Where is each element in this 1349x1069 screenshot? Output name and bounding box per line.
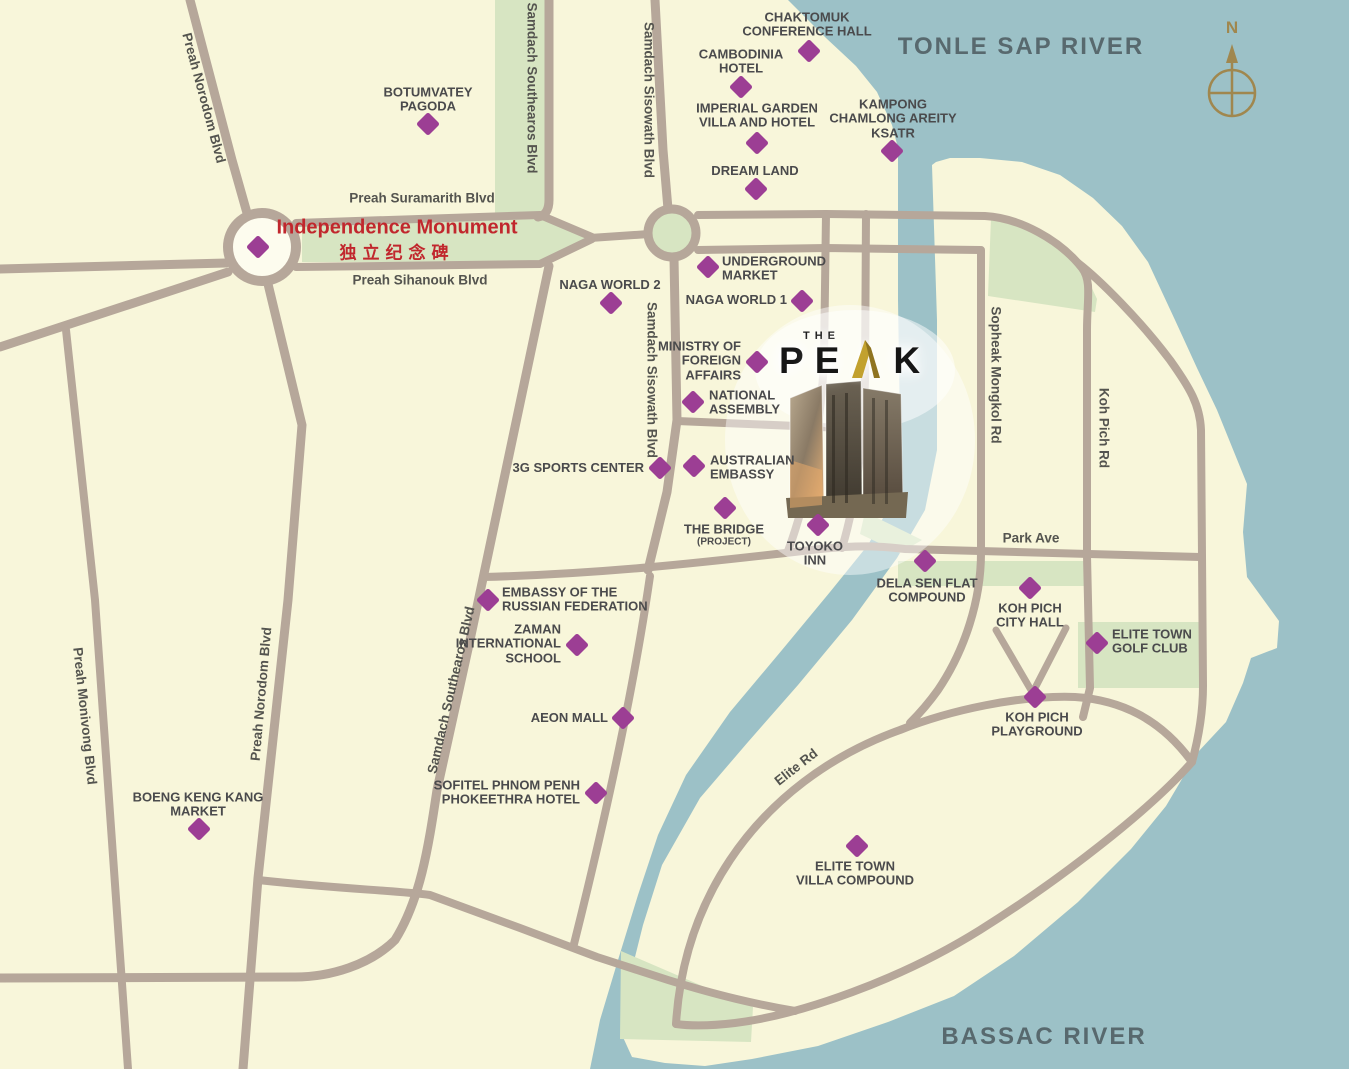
- poi-label-line: KSATR: [829, 126, 956, 140]
- poi-label-line: IMPERIAL GARDEN: [696, 102, 818, 116]
- poi-label-kampong-chamlong-areity-ksatr: KAMPONGCHAMLONG AREITYKSATR: [829, 98, 956, 141]
- poi-label-line: SOFITEL PHNOM PENH: [434, 779, 580, 793]
- poi-label-line: CHAMLONG AREITY: [829, 112, 956, 126]
- road-label: Park Ave: [1003, 531, 1060, 546]
- poi-label-cambodinia-hotel: CAMBODINIAHOTEL: [699, 48, 784, 77]
- poi-label-embassy-of-the-russian-federation: EMBASSY OF THERUSSIAN FEDERATION: [502, 586, 648, 615]
- poi-label-line: INN: [787, 554, 843, 568]
- the-peak-logo: THE P E K: [779, 328, 929, 384]
- poi-label-line: KOH PICH: [991, 711, 1082, 725]
- poi-label-line: AEON MALL: [531, 711, 608, 725]
- poi-label-line: KOH PICH: [996, 602, 1064, 616]
- poi-label-naga-world-2: NAGA WORLD 2: [559, 278, 660, 292]
- poi-label-line: UNDERGROUND: [722, 255, 826, 269]
- poi-label-koh-pich-city-hall: KOH PICHCITY HALL: [996, 602, 1064, 631]
- poi-label-naga-world-1: NAGA WORLD 1: [686, 293, 787, 307]
- poi-label-line: MARKET: [133, 805, 264, 819]
- poi-label-line: NATIONAL: [709, 389, 780, 403]
- logo-letter-p: P: [779, 342, 804, 379]
- monument-name-en: Independence Monument: [276, 217, 517, 239]
- poi-label-elite-town-villa-compound: ELITE TOWNVILLA COMPOUND: [796, 860, 914, 889]
- poi-label-line: CONFERENCE HALL: [742, 25, 871, 39]
- poi-label-line: HOTEL: [699, 62, 784, 76]
- poi-label-line: VILLA AND HOTEL: [696, 116, 818, 130]
- poi-label-line: VILLA COMPOUND: [796, 874, 914, 888]
- poi-label-line: BOTUMVATEY: [383, 86, 472, 100]
- poi-label-line: CAMBODINIA: [699, 48, 784, 62]
- poi-label-boeng-keng-kang-market: BOENG KENG KANGMARKET: [133, 791, 264, 820]
- poi-label-line: KAMPONG: [829, 98, 956, 112]
- poi-label-line: THE BRIDGE: [684, 522, 764, 536]
- poi-label-line: 3G SPORTS CENTER: [513, 461, 644, 475]
- poi-label-line: ELITE TOWN: [796, 860, 914, 874]
- poi-label-line: (PROJECT): [684, 537, 764, 548]
- logo-letter-k: K: [893, 342, 920, 379]
- road-label: Koh Pich Rd: [1097, 388, 1112, 468]
- poi-label-line: SCHOOL: [456, 651, 561, 665]
- poi-label-line: MINISTRY OF: [658, 340, 741, 354]
- poi-label-line: BOENG KENG KANG: [133, 791, 264, 805]
- poi-label-toyoko-inn: TOYOKOINN: [787, 540, 843, 569]
- poi-label-line: ZAMAN: [456, 623, 561, 637]
- poi-label-national-assembly: NATIONALASSEMBLY: [709, 389, 780, 418]
- river-label: BASSAC RIVER: [941, 1023, 1146, 1051]
- poi-label-aeon-mall: AEON MALL: [531, 711, 608, 725]
- poi-label-botumvatey-pagoda: BOTUMVATEYPAGODA: [383, 86, 472, 115]
- poi-label-line: INTERNATIONAL: [456, 637, 561, 651]
- poi-label-line: MARKET: [722, 269, 826, 283]
- map-canvas: N: [0, 0, 1349, 1069]
- poi-label-line: PHOKEETHRA HOTEL: [434, 793, 580, 807]
- poi-label-line: FOREIGN: [658, 354, 741, 368]
- road-label: Samdach Sisowath Blvd: [642, 22, 657, 178]
- poi-label-line: CITY HALL: [996, 616, 1064, 630]
- poi-label-ministry-of-foreign-affairs: MINISTRY OFFOREIGNAFFAIRS: [658, 340, 741, 383]
- compass-north-label: N: [1226, 18, 1238, 37]
- poi-label-dream-land: DREAM LAND: [711, 164, 798, 178]
- poi-label-line: PLAYGROUND: [991, 725, 1082, 739]
- road-label: Preah Suramarith Blvd: [349, 191, 495, 206]
- road-label: Sopheak Mongkol Rd: [989, 306, 1004, 443]
- poi-label-zaman-international-school: ZAMANINTERNATIONALSCHOOL: [456, 623, 561, 666]
- poi-label-chaktomuk-conference-hall: CHAKTOMUKCONFERENCE HALL: [742, 11, 871, 40]
- poi-label-line: EMBASSY OF THE: [502, 586, 648, 600]
- road-label: Samdach Southearos Blvd: [525, 2, 540, 173]
- poi-label-sofitel-phnom-penh-phokeethra-hotel: SOFITEL PHNOM PENHPHOKEETHRA HOTEL: [434, 779, 580, 808]
- poi-label-line: TOYOKO: [787, 540, 843, 554]
- poi-label-line: AFFAIRS: [658, 368, 741, 382]
- poi-label-line: DREAM LAND: [711, 164, 798, 178]
- poi-label-line: EMBASSY: [710, 468, 795, 482]
- monument-name-cn: 独立纪念碑: [276, 239, 517, 264]
- poi-label-line: RUSSIAN FEDERATION: [502, 600, 648, 614]
- poi-label-line: PAGODA: [383, 100, 472, 114]
- poi-label-underground-market: UNDERGROUNDMARKET: [722, 255, 826, 284]
- phnom-penh-location-map: N: [0, 0, 1349, 1069]
- peak-apex-icon: [852, 340, 882, 378]
- poi-label-line: ELITE TOWN: [1112, 628, 1192, 642]
- poi-label-line: DELA SEN FLAT: [876, 577, 977, 591]
- river-label: TONLE SAP RIVER: [898, 33, 1145, 61]
- poi-label-australian-embassy: AUSTRALIANEMBASSY: [710, 454, 795, 483]
- poi-label-imperial-garden-villa-and-hotel: IMPERIAL GARDENVILLA AND HOTEL: [696, 102, 818, 131]
- poi-label-line: NAGA WORLD 2: [559, 278, 660, 292]
- independence-monument-label: Independence Monument 独立纪念碑: [276, 217, 517, 264]
- poi-label-dela-sen-flat-compound: DELA SEN FLATCOMPOUND: [876, 577, 977, 606]
- poi-label-line: CHAKTOMUK: [742, 11, 871, 25]
- poi-label-line: GOLF CLUB: [1112, 642, 1192, 656]
- poi-label-line: AUSTRALIAN: [710, 454, 795, 468]
- poi-label-the-bridge-project: THE BRIDGE(PROJECT): [684, 522, 764, 547]
- poi-label-3g-sports-center: 3G SPORTS CENTER: [513, 461, 644, 475]
- poi-label-elite-town-golf-club: ELITE TOWNGOLF CLUB: [1112, 628, 1192, 657]
- poi-label-koh-pich-playground: KOH PICHPLAYGROUND: [991, 711, 1082, 740]
- logo-letter-e: E: [815, 342, 840, 379]
- poi-label-line: NAGA WORLD 1: [686, 293, 787, 307]
- poi-label-line: ASSEMBLY: [709, 403, 780, 417]
- sisowath-roundabout: [648, 209, 696, 257]
- poi-label-line: COMPOUND: [876, 591, 977, 605]
- road-label: Preah Sihanouk Blvd: [352, 273, 487, 288]
